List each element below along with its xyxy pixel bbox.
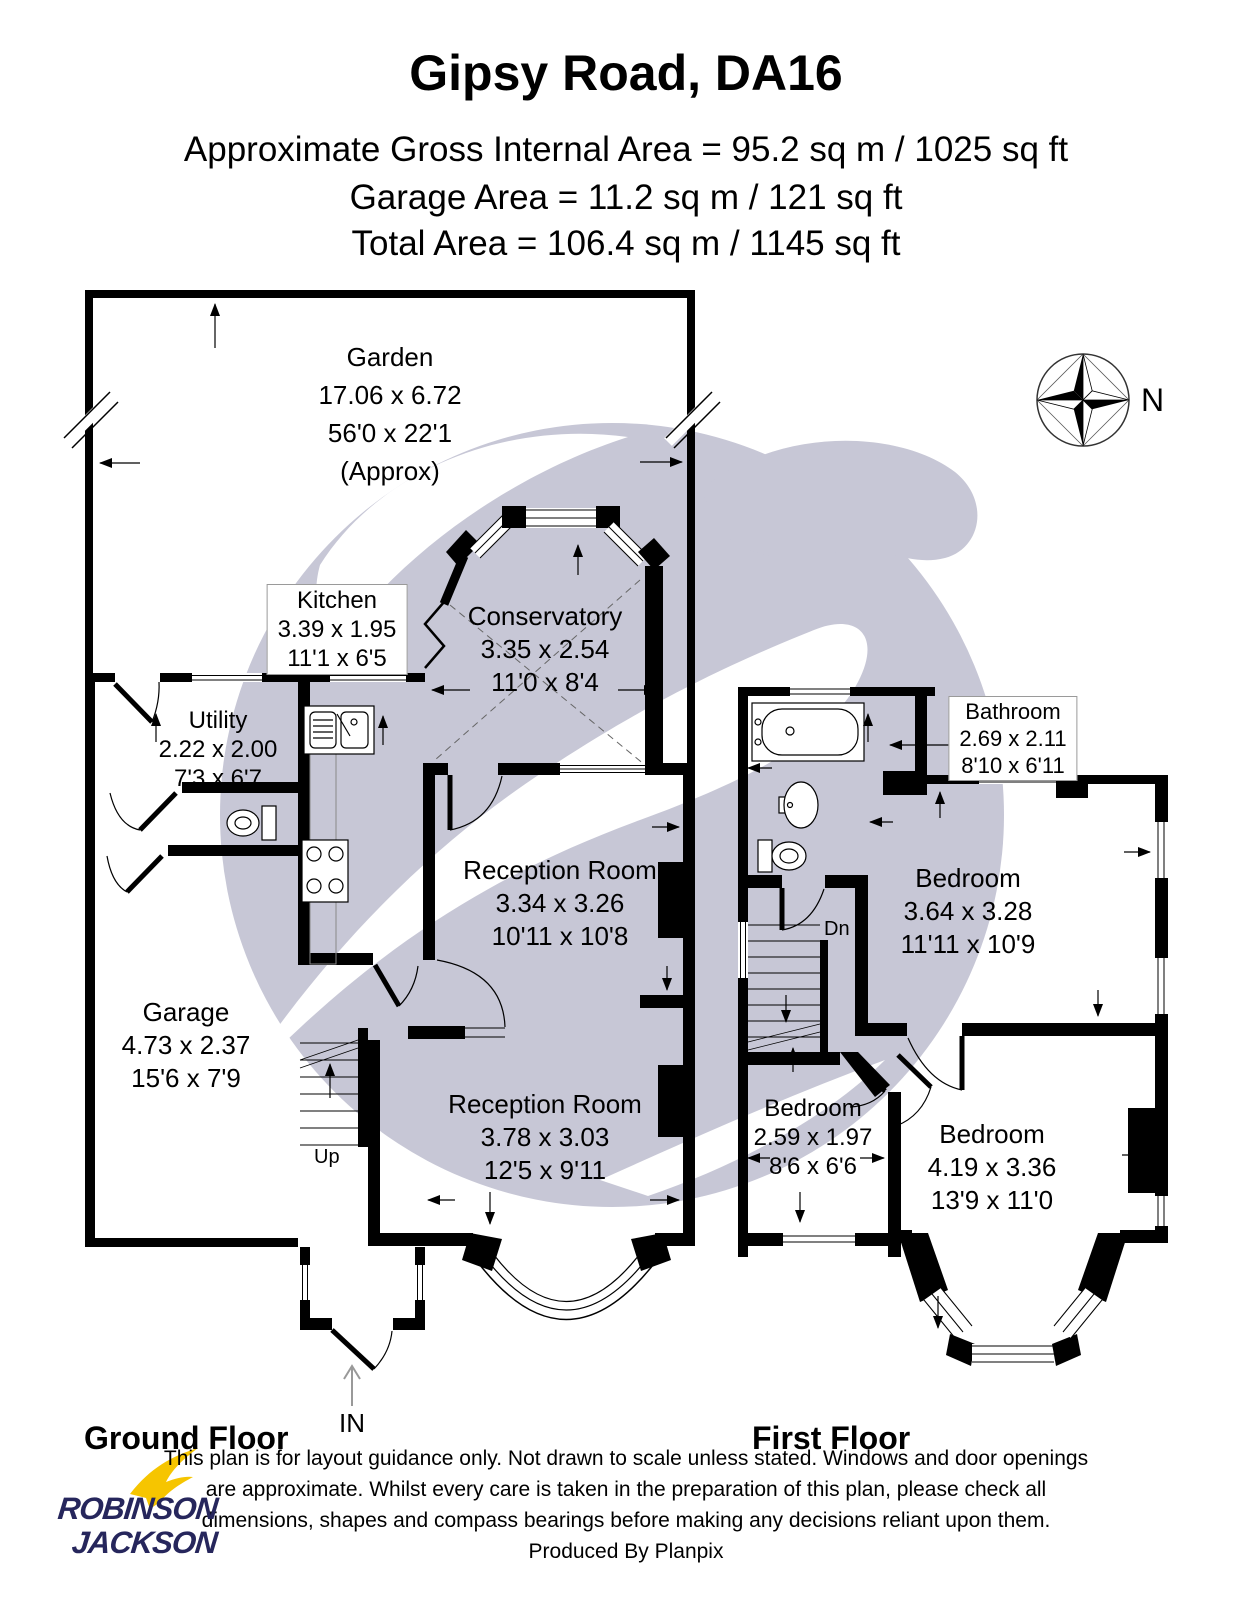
room-size-imperial: 8'6 x 6'6 bbox=[754, 1152, 873, 1181]
toilet-icon bbox=[758, 840, 806, 872]
room-name: Bedroom bbox=[901, 862, 1036, 895]
disclaimer-line: Produced By Planpix bbox=[164, 1536, 1088, 1567]
room-size-imperial: 7'3 x 6'7 bbox=[159, 764, 278, 793]
kitchen-sink-icon bbox=[304, 706, 374, 754]
chimney-breast bbox=[658, 862, 683, 938]
logo-line-2: JACKSON bbox=[70, 1526, 280, 1560]
compass-north-label: N bbox=[1141, 382, 1164, 419]
total-area-text: Total Area = 106.4 sq m / 1145 sq ft bbox=[352, 224, 901, 264]
room-size-metric: 3.39 x 1.95 bbox=[278, 615, 397, 644]
entrance-in-label: IN bbox=[339, 1408, 365, 1439]
gross-area-text: Approximate Gross Internal Area = 95.2 s… bbox=[184, 130, 1068, 170]
room-size-metric: 2.69 x 2.11 bbox=[959, 725, 1066, 752]
garden-label: Garden 17.06 x 6.72 56'0 x 22'1 (Approx) bbox=[318, 338, 461, 490]
garage-label: Garage 4.73 x 2.37 15'6 x 7'9 bbox=[122, 996, 251, 1095]
bathtub-icon bbox=[752, 703, 864, 761]
agency-logo: ROBINSON JACKSON bbox=[58, 1448, 278, 1560]
room-name: Bedroom bbox=[928, 1118, 1057, 1151]
reception-room-2-label: Reception Room 3.78 x 3.03 12'5 x 9'11 bbox=[448, 1088, 642, 1187]
entrance-arrow bbox=[344, 1366, 360, 1406]
room-size-metric: 17.06 x 6.72 bbox=[318, 376, 461, 414]
disclaimer-line: are approximate. Whilst every care is ta… bbox=[164, 1474, 1088, 1505]
bathroom-label: Bathroom 2.69 x 2.11 8'10 x 6'11 bbox=[948, 696, 1077, 781]
bedroom-3-label: Bedroom 4.19 x 3.36 13'9 x 11'0 bbox=[928, 1118, 1057, 1217]
kitchen-label: Kitchen 3.39 x 1.95 11'1 x 6'5 bbox=[267, 584, 408, 675]
reception-room-1-label: Reception Room 3.34 x 3.26 10'11 x 10'8 bbox=[463, 854, 657, 953]
room-size-imperial: 15'6 x 7'9 bbox=[122, 1062, 251, 1095]
room-size-imperial: 8'10 x 6'11 bbox=[959, 752, 1066, 779]
conservatory-label: Conservatory 3.35 x 2.54 11'0 x 8'4 bbox=[468, 600, 623, 699]
floorplan-page: Gipsy Road, DA16 Approximate Gross Inter… bbox=[0, 0, 1252, 1600]
room-name: Reception Room bbox=[463, 854, 657, 887]
bedroom-2-label: Bedroom 2.59 x 1.97 8'6 x 6'6 bbox=[754, 1094, 873, 1181]
room-size-metric: 2.59 x 1.97 bbox=[754, 1123, 873, 1152]
room-size-imperial: 11'1 x 6'5 bbox=[278, 644, 397, 673]
room-size-imperial: 11'0 x 8'4 bbox=[468, 666, 623, 699]
room-size-metric: 3.78 x 3.03 bbox=[448, 1121, 642, 1154]
chimney-breast bbox=[1128, 1108, 1155, 1193]
room-name: Garage bbox=[122, 996, 251, 1029]
room-size-imperial: 56'0 x 22'1 bbox=[318, 414, 461, 452]
room-name: Utility bbox=[159, 706, 278, 735]
room-size-note: (Approx) bbox=[318, 452, 461, 490]
stairs-down-label: Dn bbox=[824, 918, 850, 941]
room-size-imperial: 10'11 x 10'8 bbox=[463, 920, 657, 953]
utility-label: Utility 2.22 x 2.00 7'3 x 6'7 bbox=[159, 706, 278, 793]
stairs-up-label: Up bbox=[314, 1146, 340, 1169]
stove-icon bbox=[302, 840, 348, 902]
room-size-imperial: 11'11 x 10'9 bbox=[901, 928, 1036, 961]
room-name: Reception Room bbox=[448, 1088, 642, 1121]
room-size-imperial: 13'9 x 11'0 bbox=[928, 1184, 1057, 1217]
room-size-metric: 4.73 x 2.37 bbox=[122, 1029, 251, 1062]
room-size-metric: 2.22 x 2.00 bbox=[159, 735, 278, 764]
bow-window bbox=[462, 1233, 671, 1320]
chimney-breast bbox=[658, 1065, 683, 1137]
bedroom-1-label: Bedroom 3.64 x 3.28 11'11 x 10'9 bbox=[901, 862, 1036, 961]
room-size-metric: 3.64 x 3.28 bbox=[901, 895, 1036, 928]
compass-rose bbox=[1037, 354, 1129, 446]
logo-line-1: ROBINSON bbox=[56, 1492, 280, 1526]
room-name: Garden bbox=[318, 338, 461, 376]
disclaimer-line: This plan is for layout guidance only. N… bbox=[164, 1443, 1088, 1474]
room-name: Kitchen bbox=[278, 586, 397, 615]
disclaimer-text: This plan is for layout guidance only. N… bbox=[164, 1443, 1088, 1567]
page-title: Gipsy Road, DA16 bbox=[409, 44, 842, 102]
room-name: Bathroom bbox=[959, 698, 1066, 725]
entrance-porch bbox=[300, 1247, 425, 1369]
garage-area-text: Garage Area = 11.2 sq m / 121 sq ft bbox=[350, 178, 903, 218]
room-name: Conservatory bbox=[468, 600, 623, 633]
room-size-imperial: 12'5 x 9'11 bbox=[448, 1154, 642, 1187]
room-size-metric: 4.19 x 3.36 bbox=[928, 1151, 1057, 1184]
bay-window bbox=[898, 1233, 1128, 1366]
window bbox=[560, 763, 645, 775]
disclaimer-line: dimensions, shapes and compass bearings … bbox=[164, 1505, 1088, 1536]
room-size-metric: 3.35 x 2.54 bbox=[468, 633, 623, 666]
room-size-metric: 3.34 x 3.26 bbox=[463, 887, 657, 920]
room-name: Bedroom bbox=[754, 1094, 873, 1123]
